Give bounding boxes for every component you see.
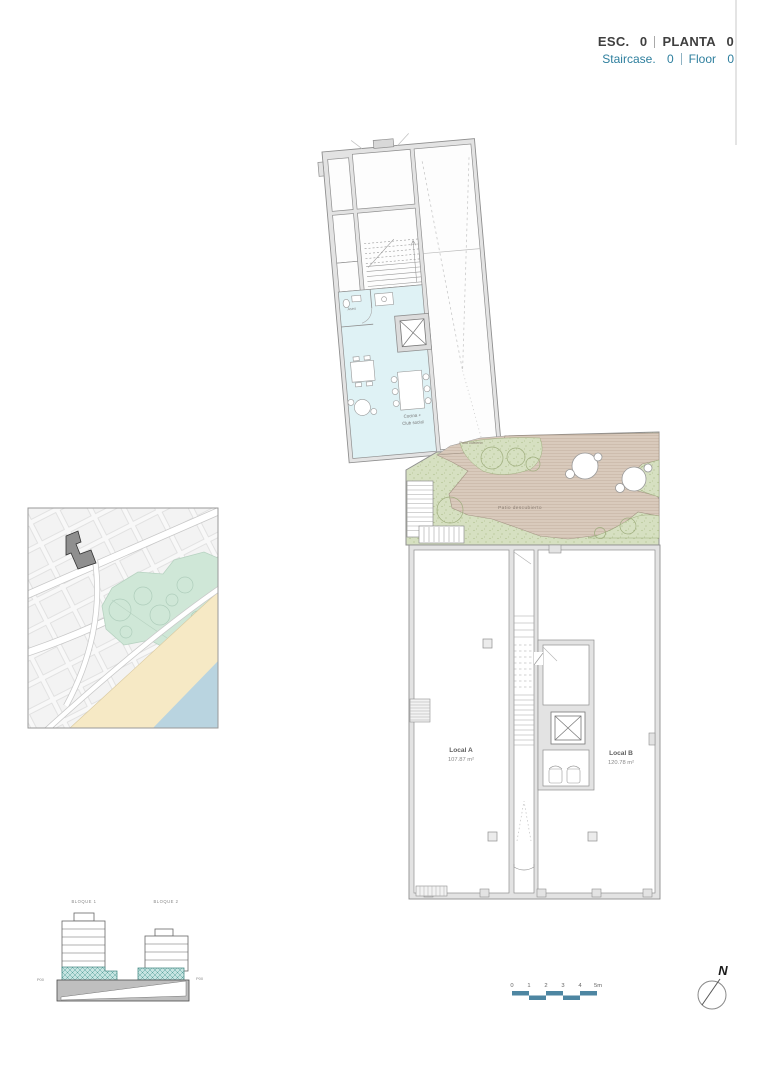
elevator-icon bbox=[395, 313, 432, 352]
local-b-area: 120.78 m² bbox=[608, 760, 634, 766]
elevation-diagram: BLOQUE 1 BLOQUE 2 P00 P00 bbox=[37, 899, 204, 1001]
scale-tick-5: 5m bbox=[594, 983, 602, 989]
scale-tick-3: 3 bbox=[561, 983, 564, 989]
staircase-value: 0 bbox=[661, 53, 674, 65]
corridor bbox=[514, 550, 534, 893]
floor-plan-svg: Aseo Cocina + Club social bbox=[0, 0, 762, 1080]
planta-value: 0 bbox=[721, 35, 734, 48]
esc-label: ESC. bbox=[598, 34, 630, 49]
local-a-area: 107.87 m² bbox=[448, 757, 474, 763]
north-label: N bbox=[718, 963, 728, 978]
north-arrow-icon: N bbox=[698, 963, 728, 1009]
esc-value: 0 bbox=[634, 35, 647, 48]
title-block: ESC.0PLANTA0 Staircase.0Floor0 bbox=[598, 35, 734, 65]
lower-building: Local A 107.87 m² Local B 120.78 m² bbox=[409, 545, 660, 899]
service-core bbox=[534, 640, 594, 790]
local-a-label: Local A bbox=[449, 747, 473, 754]
scale-tick-0: 0 bbox=[510, 983, 513, 989]
title-divider bbox=[654, 36, 655, 48]
patio-cubierto-label: Patio cubierto bbox=[459, 441, 482, 445]
scale-tick-4: 4 bbox=[578, 983, 582, 989]
local-b-label: Local B bbox=[609, 750, 633, 757]
scale-bar: 0 1 2 3 4 5m bbox=[510, 983, 602, 1000]
bloque1-label: BLOQUE 1 bbox=[72, 899, 97, 904]
drawing-sheet: ESC.0PLANTA0 Staircase.0Floor0 bbox=[0, 0, 762, 1080]
scale-tick-2: 2 bbox=[544, 983, 547, 989]
scale-tick-1: 1 bbox=[527, 983, 530, 989]
bloque2-label: BLOQUE 2 bbox=[154, 899, 179, 904]
patio-descubierto-label: Patio descubierto bbox=[498, 505, 542, 511]
ground-floor-band-2 bbox=[138, 968, 184, 980]
tower-1 bbox=[62, 913, 105, 971]
floor-label: Floor bbox=[689, 52, 716, 66]
title-line-es: ESC.0PLANTA0 bbox=[598, 35, 734, 48]
tower-2 bbox=[145, 929, 188, 971]
aseo-label: Aseo bbox=[347, 307, 356, 312]
title-line-en: Staircase.0Floor0 bbox=[598, 53, 734, 65]
elevator-icon-2 bbox=[551, 712, 585, 744]
scale-bar-segments bbox=[512, 991, 597, 1000]
p00-left-label: P00 bbox=[37, 977, 45, 982]
p00-right-label: P00 bbox=[196, 976, 204, 981]
title-divider-2 bbox=[681, 53, 682, 65]
floor-value: 0 bbox=[721, 53, 734, 65]
upper-building: Aseo Cocina + Club social bbox=[316, 128, 502, 464]
planta-label: PLANTA bbox=[662, 34, 716, 49]
staircase-label: Staircase. bbox=[602, 52, 655, 66]
site-map bbox=[20, 508, 226, 736]
facade-tab bbox=[373, 139, 394, 149]
